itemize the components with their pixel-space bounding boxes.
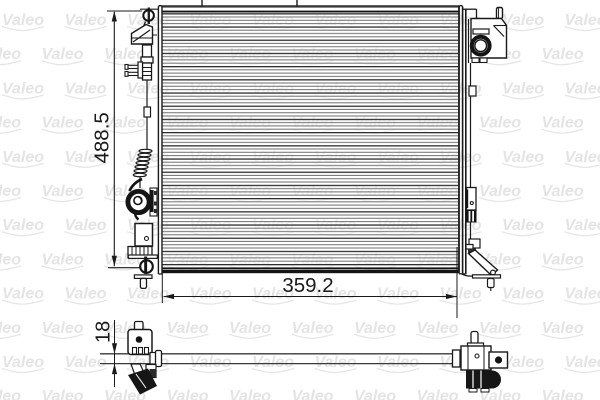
svg-text:18: 18 [93,321,115,343]
svg-text:488.5: 488.5 [91,112,114,163]
svg-text:359.2: 359.2 [282,274,333,297]
